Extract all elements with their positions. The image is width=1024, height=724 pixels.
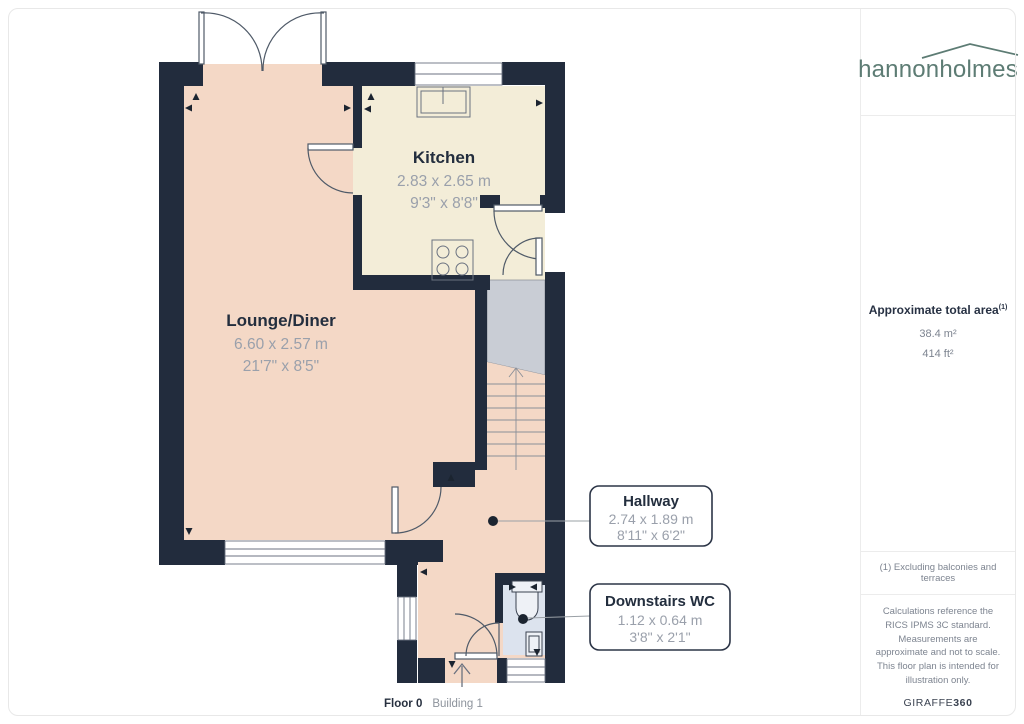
footnote-section: (1) Excluding balconies and terraces bbox=[861, 552, 1015, 595]
disclaimer-section: Calculations reference the RICS IPMS 3C … bbox=[861, 595, 1015, 715]
area-title-text: Approximate total area bbox=[869, 303, 999, 317]
provider-suffix: 360 bbox=[953, 697, 972, 709]
agency-logo-section: hannonholmes bbox=[861, 9, 1015, 116]
hallway-window bbox=[398, 597, 416, 640]
floors bbox=[184, 64, 545, 683]
hallway-marker-dot bbox=[488, 516, 498, 526]
provider-name: GIRAFFE bbox=[903, 697, 953, 709]
floorplan-drawing: Kitchen 2.83 x 2.65 m 9'3" x 8'8" Lounge… bbox=[0, 0, 862, 724]
hallway-dim-imperial: 8'11" x 6'2" bbox=[617, 527, 685, 543]
agency-logo: hannonholmes bbox=[858, 42, 1018, 82]
area-section: Approximate total area(1) 38.4 m² 414 ft… bbox=[861, 116, 1015, 552]
kitchen-dim-metric: 2.83 x 2.65 m bbox=[397, 173, 491, 190]
stair-landing bbox=[487, 280, 545, 375]
floor-label: Floor 0 bbox=[384, 698, 422, 710]
wc-label: Downstairs WC bbox=[605, 593, 715, 610]
kitchen-window bbox=[415, 63, 502, 85]
hallway-label: Hallway bbox=[623, 493, 680, 510]
floorplan-page: Kitchen 2.83 x 2.65 m 9'3" x 8'8" Lounge… bbox=[0, 0, 1024, 724]
building-label: Building 1 bbox=[432, 698, 483, 710]
footnote-text: (1) Excluding balconies and terraces bbox=[869, 562, 1007, 584]
kitchen-dim-imperial: 9'3" x 8'8" bbox=[410, 195, 478, 212]
area-m2: 38.4 m² bbox=[869, 324, 1008, 344]
floor-indicator: Floor 0 Building 1 bbox=[384, 698, 483, 710]
kitchen-label: Kitchen bbox=[413, 148, 475, 167]
logo-text-1: hannon bbox=[858, 56, 939, 83]
info-sidebar: hannonholmes Approximate total area(1) 3… bbox=[860, 9, 1015, 715]
hallway-dim-metric: 2.74 x 1.89 m bbox=[609, 511, 694, 527]
wc-dim-metric: 1.12 x 0.64 m bbox=[618, 612, 703, 628]
lounge-dim-metric: 6.60 x 2.57 m bbox=[234, 336, 328, 353]
lounge-label: Lounge/Diner bbox=[226, 311, 336, 330]
giraffe360-logo: GIRAFFE360 bbox=[871, 697, 1005, 709]
kitchen-doorway-floor bbox=[353, 148, 362, 195]
wc-basin bbox=[526, 632, 542, 656]
wc-marker-dot bbox=[518, 614, 528, 624]
lounge-window bbox=[225, 541, 385, 564]
area-title-superscript: (1) bbox=[999, 304, 1008, 311]
logo-roof-icon bbox=[920, 42, 1020, 59]
french-doors bbox=[199, 12, 326, 71]
logo-text-2: holmes bbox=[939, 56, 1018, 83]
area-title: Approximate total area(1) bbox=[869, 303, 1008, 317]
disclaimer-text: Calculations reference the RICS IPMS 3C … bbox=[871, 605, 1005, 688]
wc-window bbox=[507, 659, 545, 682]
lounge-dim-imperial: 21'7" x 8'5" bbox=[243, 358, 319, 375]
wc-dim-imperial: 3'8" x 2'1" bbox=[629, 629, 690, 645]
area-ft2: 414 ft² bbox=[869, 344, 1008, 364]
